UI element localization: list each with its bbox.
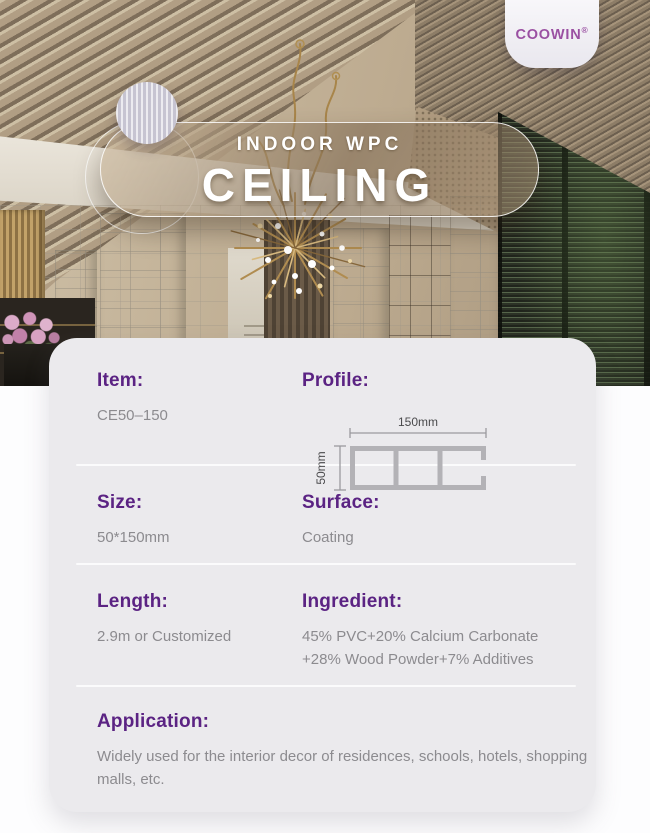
item-label: Item:	[97, 370, 302, 392]
ingredient-value: 45% PVC+20% Calcium Carbonate +28% Wood …	[302, 626, 560, 671]
spec-size: Size: 50*150mm	[97, 492, 302, 563]
striped-circle-decoration	[116, 82, 178, 144]
length-label: Length:	[97, 591, 302, 613]
spec-item: Item: CE50–150	[97, 370, 302, 464]
surface-value: Coating	[302, 527, 596, 550]
wood-slat-wall	[0, 210, 45, 306]
row-length-ingredient: Length: 2.9m or Customized Ingredient: 4…	[49, 565, 596, 685]
registered-mark: ®	[581, 25, 588, 35]
spec-ingredient: Ingredient: 45% PVC+20% Calcium Carbonat…	[302, 591, 596, 685]
application-label: Application:	[97, 711, 596, 733]
length-value: 2.9m or Customized	[97, 626, 302, 649]
item-value: CE50–150	[97, 405, 302, 428]
profile-height-dim: 50mm	[314, 451, 328, 484]
row-item-profile: Item: CE50–150 Profile: 150mm 50mm	[49, 338, 596, 464]
profile-width-dim: 150mm	[398, 416, 438, 429]
row-application: Application: Widely used for the interio…	[49, 687, 596, 812]
spec-length: Length: 2.9m or Customized	[97, 591, 302, 685]
spec-surface: Surface: Coating	[302, 492, 596, 563]
page-title: CEILING	[101, 158, 538, 212]
brand-tab: COOWIN®	[505, 0, 599, 68]
profile-label: Profile:	[302, 370, 596, 392]
product-poster: INDOOR WPC CEILING COOWIN® Item: CE50–15…	[0, 0, 650, 833]
ingredient-label: Ingredient:	[302, 591, 596, 613]
brand-logo: COOWIN®	[515, 25, 588, 43]
application-value: Widely used for the interior decor of re…	[97, 746, 593, 791]
spec-profile: Profile: 150mm 50mm	[302, 370, 596, 464]
spec-card: Item: CE50–150 Profile: 150mm 50mm	[49, 338, 596, 812]
profile-diagram: 150mm 50mm	[314, 416, 492, 496]
size-value: 50*150mm	[97, 527, 302, 550]
category-subtitle: INDOOR WPC	[101, 134, 538, 156]
surface-label: Surface:	[302, 492, 596, 514]
size-label: Size:	[97, 492, 302, 514]
